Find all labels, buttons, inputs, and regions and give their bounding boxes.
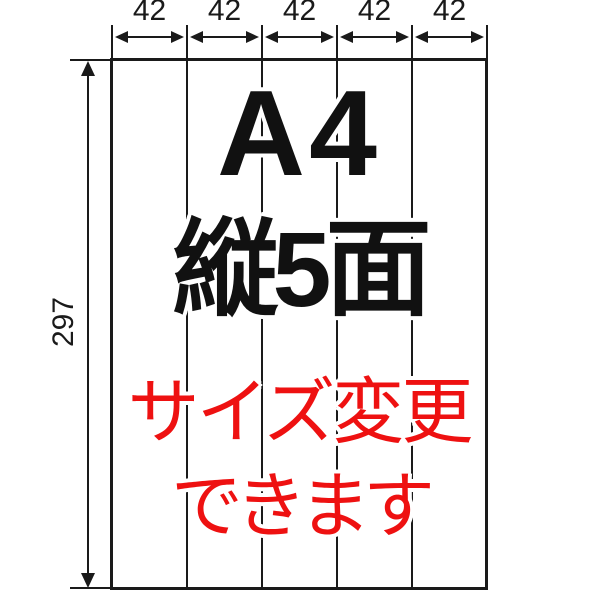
arrowhead-right-icon <box>396 31 409 43</box>
sheet-title-line1: A4 <box>110 70 488 196</box>
sheet-title-line2: 縦5面 <box>110 212 488 328</box>
size-note-line1: サイズ変更 <box>110 376 488 450</box>
size-note-line2: できます <box>110 470 488 544</box>
arrowhead-down-icon <box>81 573 95 588</box>
width-dimension-arrow <box>262 31 337 43</box>
width-dimension-label: 42 <box>187 0 262 27</box>
arrow-shaft <box>125 36 174 38</box>
width-dimension-arrow <box>112 31 187 43</box>
arrowhead-right-icon <box>471 31 484 43</box>
width-dimension-label: 42 <box>412 0 487 27</box>
height-dimension-label: 297 <box>49 277 79 367</box>
arrowhead-right-icon <box>321 31 334 43</box>
arrow-shaft <box>425 36 474 38</box>
arrow-shaft <box>200 36 249 38</box>
label-sheet-diagram: 42 42 42 42 42 297 A4 縦5面 サイズ変更 できます <box>0 0 600 600</box>
height-dimension-arrow <box>87 74 89 575</box>
width-dimension-arrow <box>337 31 412 43</box>
width-dimension-arrow <box>187 31 262 43</box>
width-dimension-label: 42 <box>337 0 412 27</box>
width-dimension-label: 42 <box>262 0 337 27</box>
arrowhead-right-icon <box>171 31 184 43</box>
arrow-shaft <box>275 36 324 38</box>
width-dimension-arrow <box>412 31 487 43</box>
arrow-shaft <box>350 36 399 38</box>
width-dimension-label: 42 <box>112 0 187 27</box>
arrowhead-right-icon <box>246 31 259 43</box>
